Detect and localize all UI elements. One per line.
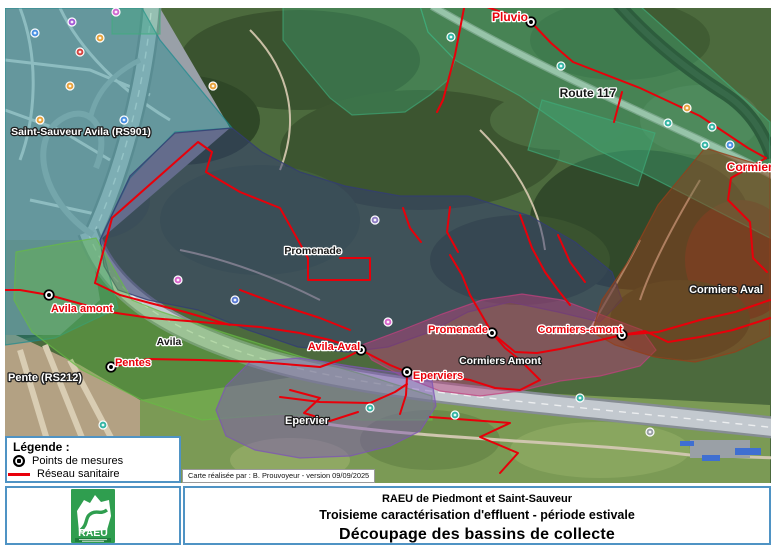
map-label: Promenade (284, 245, 341, 257)
measure-point (486, 327, 497, 338)
title-org: RAEU de Piedmont et Saint-Sauveur (185, 493, 769, 505)
poi-icon (557, 62, 565, 70)
map-sheet: PluvioRoute 117CormiersSaint-Sauveur Avi… (0, 0, 777, 551)
map-label: Saint-Sauveur Avila (RS901) (11, 126, 151, 138)
poi-icon (683, 104, 691, 112)
legend-item-label: Réseau sanitaire (37, 468, 120, 480)
poi-icon (99, 421, 107, 429)
map-label: Route 117 (560, 86, 617, 100)
poi-icon (112, 8, 120, 16)
measure-point-icon (13, 455, 25, 467)
map-label: Cormiers (727, 160, 777, 174)
title-main: Découpage des bassins de collecte (185, 526, 769, 544)
legend-item-network: Réseau sanitaire (13, 468, 173, 480)
poi-icon (384, 318, 392, 326)
map-label: Avila amont (51, 303, 113, 315)
poi-icon (68, 18, 76, 26)
map-label: Eperviers (413, 370, 463, 382)
poi-icon (209, 82, 217, 90)
poi-icon (96, 34, 104, 42)
raeu-logo: RAEU (71, 489, 115, 543)
poi-icon (576, 394, 584, 402)
poi-icon (664, 119, 672, 127)
poi-icon (366, 404, 374, 412)
map-label: Pentes (115, 357, 151, 369)
measure-point (401, 366, 412, 377)
poi-icon (726, 141, 734, 149)
poi-icon (646, 428, 654, 436)
poi-icon (451, 411, 459, 419)
poi-icon (708, 123, 716, 131)
measure-point (43, 289, 54, 300)
logo-text: RAEU (78, 527, 108, 539)
poi-icon (231, 296, 239, 304)
map-label: Epervier (285, 415, 330, 427)
poi-icon (174, 276, 182, 284)
poi-icon (371, 216, 379, 224)
poi-icon (76, 48, 84, 56)
legend-title: Légende : (13, 440, 173, 454)
title-subtitle: Troisieme caractérisation d'effluent - p… (185, 508, 769, 522)
poi-icon (120, 116, 128, 124)
credit-strip: Carte réalisée par : B. Prouvoyeur - ver… (182, 469, 375, 483)
poi-icon (447, 33, 455, 41)
map-label: Cormiers Aval (689, 284, 763, 296)
poi-icon (36, 116, 44, 124)
map-label: Cormiers-amont (538, 324, 623, 336)
sanitary-line-icon (8, 473, 30, 476)
map-label: Avila (157, 336, 182, 348)
legend-box: Légende : Points de mesures Réseau sanit… (5, 436, 181, 483)
legend-item-label: Points de mesures (32, 455, 123, 467)
map-label: Promenade (428, 324, 488, 336)
map-label: Avila-Aval (308, 341, 360, 353)
legend-item-points: Points de mesures (13, 455, 173, 467)
map-label: Pluvio (492, 10, 528, 24)
poi-icon (701, 141, 709, 149)
poi-icon (31, 29, 39, 37)
map-label: Cormiers Amont (459, 355, 541, 367)
title-block: RAEU de Piedmont et Saint-Sauveur Troisi… (183, 486, 771, 545)
logo-box: RAEU (5, 486, 181, 545)
poi-icon (66, 82, 74, 90)
map-label: Pente (RS212) (8, 372, 82, 384)
